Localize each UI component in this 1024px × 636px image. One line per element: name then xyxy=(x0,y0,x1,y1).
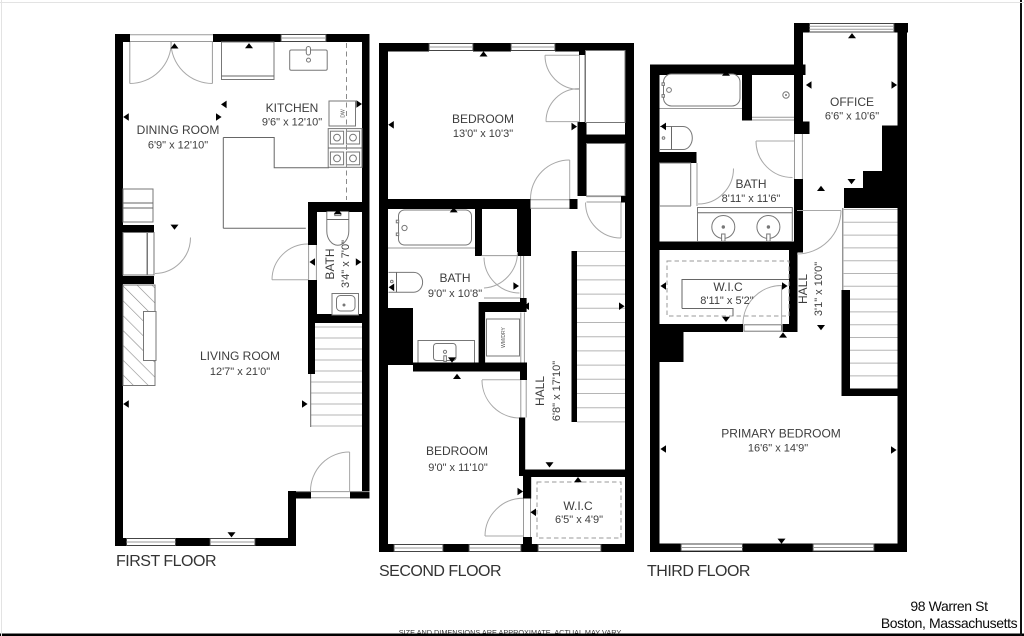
svg-text:THIRD FLOOR: THIRD FLOOR xyxy=(647,563,750,580)
svg-text:16'6" x 14'9": 16'6" x 14'9" xyxy=(748,443,808,455)
svg-text:6'6" x 10'6": 6'6" x 10'6" xyxy=(825,111,879,123)
svg-text:6'9" x 12'10": 6'9" x 12'10" xyxy=(148,139,208,151)
svg-text:98 Warren St: 98 Warren St xyxy=(910,598,988,614)
svg-text:6'5" x 4'9": 6'5" x 4'9" xyxy=(555,514,603,526)
svg-text:6'8" x 17'10": 6'8" x 17'10" xyxy=(551,361,563,421)
svg-text:Boston, Massachusetts: Boston, Massachusetts xyxy=(881,615,1018,631)
svg-text:WM/DRY: WM/DRY xyxy=(501,326,507,347)
svg-text:3'4" x 7'0": 3'4" x 7'0" xyxy=(340,240,352,288)
svg-text:8'11" x 11'6": 8'11" x 11'6" xyxy=(722,193,781,205)
svg-text:8'11" x 5'2": 8'11" x 5'2" xyxy=(700,295,753,307)
svg-text:W.I.C: W.I.C xyxy=(713,280,743,294)
svg-text:9'6" x 12'10": 9'6" x 12'10" xyxy=(262,117,322,129)
svg-text:DW: DW xyxy=(341,109,347,118)
svg-text:DINING ROOM: DINING ROOM xyxy=(137,123,220,137)
svg-text:BEDROOM: BEDROOM xyxy=(452,112,514,126)
svg-text:BEDROOM: BEDROOM xyxy=(426,444,488,458)
svg-text:HALL: HALL xyxy=(796,274,810,304)
svg-text:BATH: BATH xyxy=(323,248,337,279)
svg-text:W.I.C: W.I.C xyxy=(563,499,593,513)
svg-text:12'7" x 21'0": 12'7" x 21'0" xyxy=(210,366,270,378)
svg-text:LIVING ROOM: LIVING ROOM xyxy=(200,349,280,363)
svg-text:FIRST FLOOR: FIRST FLOOR xyxy=(116,553,216,570)
svg-text:SECOND FLOOR: SECOND FLOOR xyxy=(379,563,501,580)
svg-text:HALL: HALL xyxy=(533,376,547,406)
svg-text:OFFICE: OFFICE xyxy=(830,95,874,109)
svg-text:BATH: BATH xyxy=(735,177,766,191)
svg-text:BATH: BATH xyxy=(439,271,470,285)
svg-text:KITCHEN: KITCHEN xyxy=(266,101,319,115)
svg-text:3'1" x 10'0": 3'1" x 10'0" xyxy=(813,262,825,316)
svg-text:9'0" x 10'8": 9'0" x 10'8" xyxy=(428,288,482,300)
svg-text:PRIMARY BEDROOM: PRIMARY BEDROOM xyxy=(721,427,841,441)
svg-text:13'0" x 10'3": 13'0" x 10'3" xyxy=(453,128,513,140)
svg-text:9'0" x 11'10": 9'0" x 11'10" xyxy=(428,462,488,474)
